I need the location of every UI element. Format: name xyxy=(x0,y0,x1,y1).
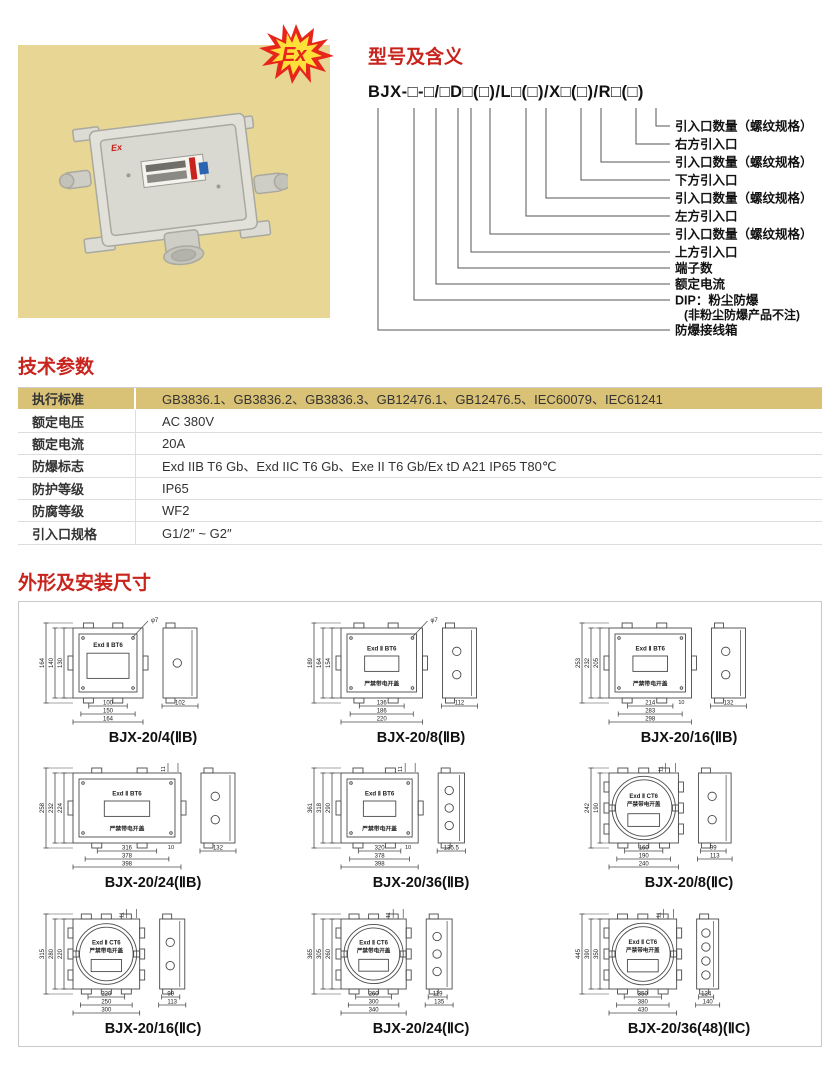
svg-text:严禁带电开盖: 严禁带电开盖 xyxy=(361,825,397,833)
svg-text:205: 205 xyxy=(594,657,600,668)
svg-text:112: 112 xyxy=(455,701,465,707)
svg-text:189: 189 xyxy=(308,657,314,668)
model-label: 端子数 xyxy=(675,261,713,276)
svg-text:250: 250 xyxy=(101,999,112,1005)
drawing-caption: BJX-20/16(ⅡB) xyxy=(555,730,823,746)
svg-text:113: 113 xyxy=(167,999,177,1005)
param-label: 额定电流 xyxy=(18,433,136,454)
param-row: 执行标准GB3836.1、GB3836.2、GB3836.3、GB12476.1… xyxy=(18,388,822,410)
model-label: 引入口数量（螺纹规格） xyxy=(675,191,813,206)
dimension-drawing: Exd Ⅱ CT6严禁带电开盖3653052602603003401111913… xyxy=(287,897,555,1042)
param-row: 防爆标志Exd IIB T6 Gb、Exd IIC T6 Gb、Exe II T… xyxy=(18,455,822,477)
svg-text:严禁带电开盖: 严禁带电开盖 xyxy=(363,679,399,687)
dimension-drawing: Exd Ⅱ CT6严禁带电开盖3152802202202503001199113… xyxy=(19,897,287,1042)
model-section: 型号及含义 BJX-□-□/□D□(□)/L□(□)/X□(□)/R□(□) 引… xyxy=(368,42,830,342)
svg-text:Exd Ⅱ CT6: Exd Ⅱ CT6 xyxy=(628,939,657,946)
svg-text:300: 300 xyxy=(369,999,380,1005)
params-section: 技术参数 执行标准GB3836.1、GB3836.2、GB3836.3、GB12… xyxy=(18,352,822,545)
param-value: GB3836.1、GB3836.2、GB3836.3、GB12476.1、GB1… xyxy=(136,389,822,408)
svg-text:160: 160 xyxy=(639,846,650,852)
model-section-title: 型号及含义 xyxy=(368,42,830,69)
svg-text:298: 298 xyxy=(645,717,656,723)
drawing-caption: BJX-20/8(ⅡB) xyxy=(287,730,555,746)
ex-starburst-badge: Ex xyxy=(250,22,342,86)
param-row: 额定电流20A xyxy=(18,433,822,455)
svg-text:135.5: 135.5 xyxy=(444,846,460,852)
param-row: 防腐等级WF2 xyxy=(18,500,822,522)
dims-section: 外形及安装尺寸 Exd Ⅱ BT6164140130100150164φ7102… xyxy=(18,568,822,1047)
drawing-caption: BJX-20/8(ⅡC) xyxy=(555,875,823,891)
svg-text:380: 380 xyxy=(638,999,649,1005)
svg-text:283: 283 xyxy=(645,709,656,715)
svg-text:150: 150 xyxy=(103,709,114,715)
param-label: 执行标准 xyxy=(18,388,136,409)
svg-text:132: 132 xyxy=(723,701,734,707)
params-section-title: 技术参数 xyxy=(18,352,822,379)
svg-text:190: 190 xyxy=(639,854,650,860)
svg-text:190: 190 xyxy=(594,803,600,814)
model-label: 引入口数量（螺纹规格） xyxy=(675,119,813,134)
drawing-caption: BJX-20/24(ⅡB) xyxy=(19,875,287,891)
param-label: 防护等级 xyxy=(18,478,136,499)
model-label: 防爆接线箱 xyxy=(675,323,738,338)
svg-text:φ7: φ7 xyxy=(151,618,159,624)
svg-text:378: 378 xyxy=(122,854,133,860)
model-label: 右方引入口 xyxy=(674,137,738,152)
model-breakdown-tree: 引入口数量（螺纹规格）右方引入口引入口数量（螺纹规格）下方引入口引入口数量（螺纹… xyxy=(368,108,830,358)
svg-text:11: 11 xyxy=(120,912,126,918)
svg-text:340: 340 xyxy=(369,1007,380,1013)
dimension-drawing: Exd Ⅱ BT6严禁带电开盖25323220521428329810132BJ… xyxy=(555,606,823,751)
svg-text:390: 390 xyxy=(585,948,591,959)
param-label: 引入口规格 xyxy=(18,522,136,543)
model-connector-line xyxy=(378,108,670,330)
model-connector-line xyxy=(546,108,670,198)
param-label: 防腐等级 xyxy=(18,500,136,521)
drawing-caption: BJX-20/36(48)(ⅡC) xyxy=(555,1021,823,1037)
svg-text:130: 130 xyxy=(58,657,64,668)
svg-text:11: 11 xyxy=(658,766,664,772)
model-label: 上方引入口 xyxy=(675,245,738,260)
svg-text:258: 258 xyxy=(40,803,46,814)
params-table: 执行标准GB3836.1、GB3836.2、GB3836.3、GB12476.1… xyxy=(18,387,822,545)
svg-text:10: 10 xyxy=(168,845,174,851)
svg-text:11: 11 xyxy=(386,912,392,918)
svg-text:99: 99 xyxy=(167,991,174,997)
drawing-caption: BJX-20/36(ⅡB) xyxy=(287,875,555,891)
svg-text:11: 11 xyxy=(161,766,167,772)
junction-box-photo: Ex xyxy=(58,100,288,270)
svg-text:316: 316 xyxy=(122,846,133,852)
svg-text:240: 240 xyxy=(639,862,650,868)
dimension-drawing: Exd Ⅱ BT6严禁带电开盖189164154136186220φ7112BJ… xyxy=(287,606,555,751)
param-row: 引入口规格G1/2″ ~ G2″ xyxy=(18,522,822,544)
svg-text:135: 135 xyxy=(434,999,445,1005)
svg-text:102: 102 xyxy=(175,701,186,707)
svg-text:113: 113 xyxy=(710,854,720,860)
dimension-drawing: Exd Ⅱ BT6164140130100150164φ7102BJX-20/4… xyxy=(19,606,287,751)
svg-text:398: 398 xyxy=(122,862,133,868)
svg-text:220: 220 xyxy=(377,717,388,723)
dimension-drawing: Exd Ⅱ CT6严禁带电开盖2421901601902401199113BJX… xyxy=(555,751,823,896)
svg-text:严禁带电开盖: 严禁带电开盖 xyxy=(357,946,391,954)
dimension-drawing: Exd Ⅱ BT6严禁带电开盖2582322243163783981011132… xyxy=(19,751,287,896)
svg-text:124: 124 xyxy=(701,991,712,997)
model-label-note: (非粉尘防爆产品不注) xyxy=(684,307,800,322)
svg-text:253: 253 xyxy=(576,657,582,668)
param-label: 防爆标志 xyxy=(18,455,136,476)
svg-text:Exd Ⅱ BT6: Exd Ⅱ BT6 xyxy=(365,791,395,798)
param-value: G1/2″ ~ G2″ xyxy=(136,526,822,541)
model-connector-line xyxy=(414,108,670,300)
svg-text:260: 260 xyxy=(369,991,380,997)
svg-text:10: 10 xyxy=(405,845,411,851)
param-label: 额定电压 xyxy=(18,410,136,431)
svg-text:300: 300 xyxy=(101,1007,112,1013)
svg-text:Exd Ⅱ CT6: Exd Ⅱ CT6 xyxy=(92,939,121,946)
model-string: BJX-□-□/□D□(□)/L□(□)/X□(□)/R□(□) xyxy=(368,83,830,102)
param-value: WF2 xyxy=(136,503,822,518)
param-value: 20A xyxy=(136,436,822,451)
svg-text:Exd Ⅱ CT6: Exd Ⅱ CT6 xyxy=(359,939,388,946)
svg-text:Exd Ⅱ BT6: Exd Ⅱ BT6 xyxy=(112,791,142,798)
svg-text:186: 186 xyxy=(377,709,388,715)
svg-text:严禁带电开盖: 严禁带电开盖 xyxy=(109,825,145,833)
svg-text:398: 398 xyxy=(375,862,386,868)
svg-text:232: 232 xyxy=(585,657,591,668)
dimension-drawings-panel: Exd Ⅱ BT6164140130100150164φ7102BJX-20/4… xyxy=(18,601,822,1047)
svg-text:318: 318 xyxy=(317,803,323,814)
svg-text:Exd Ⅱ BT6: Exd Ⅱ BT6 xyxy=(635,645,665,652)
svg-text:140: 140 xyxy=(703,999,714,1005)
model-label: DIP：粉尘防爆 xyxy=(675,293,759,308)
svg-text:11: 11 xyxy=(657,912,663,918)
svg-text:100: 100 xyxy=(103,701,114,707)
svg-text:350: 350 xyxy=(638,991,649,997)
svg-text:136: 136 xyxy=(377,701,388,707)
svg-text:164: 164 xyxy=(317,657,323,668)
svg-text:Exd Ⅱ BT6: Exd Ⅱ BT6 xyxy=(93,642,123,649)
svg-text:严禁带电开盖: 严禁带电开盖 xyxy=(90,946,124,954)
drawing-caption: BJX-20/24(ⅡC) xyxy=(287,1021,555,1037)
param-value: IP65 xyxy=(136,481,822,496)
svg-text:361: 361 xyxy=(308,803,314,814)
svg-text:430: 430 xyxy=(638,1007,649,1013)
dimension-drawing: Exd Ⅱ BT6严禁带电开盖3613182903203783981011135… xyxy=(287,751,555,896)
svg-text:φ7: φ7 xyxy=(430,618,438,624)
svg-text:242: 242 xyxy=(585,803,591,814)
dims-section-title: 外形及安装尺寸 xyxy=(18,568,822,595)
model-connector-line xyxy=(656,108,670,126)
svg-text:Exd Ⅱ CT6: Exd Ⅱ CT6 xyxy=(629,793,658,800)
svg-text:224: 224 xyxy=(58,803,64,814)
model-label: 额定电流 xyxy=(675,277,726,292)
param-row: 防护等级IP65 xyxy=(18,478,822,500)
param-value: Exd IIB T6 Gb、Exd IIC T6 Gb、Exe II T6 Gb… xyxy=(136,456,822,475)
svg-text:378: 378 xyxy=(375,854,386,860)
svg-text:232: 232 xyxy=(49,803,55,814)
model-label: 左方引入口 xyxy=(674,209,738,224)
svg-text:99: 99 xyxy=(710,846,717,852)
drawing-caption: BJX-20/16(ⅡC) xyxy=(19,1021,287,1037)
model-label: 引入口数量（螺纹规格） xyxy=(675,227,813,242)
svg-text:214: 214 xyxy=(645,701,656,707)
svg-text:280: 280 xyxy=(49,948,55,959)
catalog-page: Ex Ex 型号及含义 BJX-□-□/□D□(□)/L□(□)/X□(□)/R… xyxy=(0,0,840,1081)
ex-badge-text: Ex xyxy=(282,44,307,66)
svg-text:365: 365 xyxy=(308,948,314,959)
drawing-caption: BJX-20/4(ⅡB) xyxy=(19,730,287,746)
svg-text:119: 119 xyxy=(433,991,443,997)
svg-text:140: 140 xyxy=(49,657,55,668)
svg-text:220: 220 xyxy=(101,991,112,997)
param-row: 额定电压AC 380V xyxy=(18,410,822,432)
svg-text:Exd Ⅱ BT6: Exd Ⅱ BT6 xyxy=(367,645,397,652)
svg-text:严禁带电开盖: 严禁带电开盖 xyxy=(632,679,668,687)
svg-text:132: 132 xyxy=(213,846,224,852)
svg-text:315: 315 xyxy=(40,948,46,959)
svg-text:严禁带电开盖: 严禁带电开盖 xyxy=(627,800,661,808)
svg-text:290: 290 xyxy=(326,803,332,814)
param-value: AC 380V xyxy=(136,414,822,429)
svg-text:11: 11 xyxy=(398,766,404,772)
model-connector-line xyxy=(490,108,670,234)
svg-text:305: 305 xyxy=(317,948,323,959)
svg-text:220: 220 xyxy=(58,948,64,959)
svg-text:164: 164 xyxy=(40,657,46,668)
svg-text:严禁带电开盖: 严禁带电开盖 xyxy=(626,946,660,954)
svg-text:10: 10 xyxy=(678,700,684,706)
model-label: 引入口数量（螺纹规格） xyxy=(675,155,813,170)
svg-text:154: 154 xyxy=(326,657,332,668)
svg-text:320: 320 xyxy=(375,846,386,852)
dimension-drawing: Exd Ⅱ CT6严禁带电开盖4453903503503804301112414… xyxy=(555,897,823,1042)
svg-text:164: 164 xyxy=(103,717,114,723)
svg-text:260: 260 xyxy=(326,948,332,959)
svg-text:350: 350 xyxy=(594,948,600,959)
svg-text:445: 445 xyxy=(576,948,582,959)
model-label: 下方引入口 xyxy=(675,173,738,188)
